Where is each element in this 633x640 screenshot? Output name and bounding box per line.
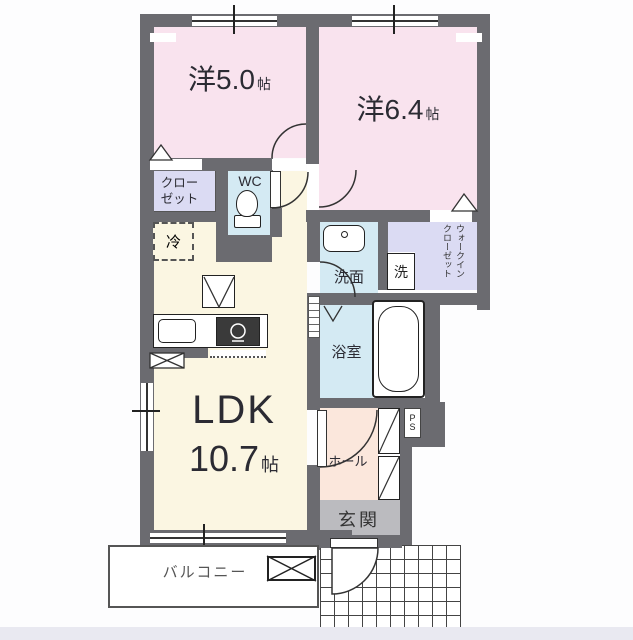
closet-label-line2: ゼット (161, 192, 199, 208)
refrigerator-box: 冷 (153, 222, 194, 261)
pillar-notch-right (456, 33, 482, 42)
wall-left (140, 14, 154, 545)
washroom-label: 洗面 (320, 260, 378, 292)
ldk-size-label: 10.7帖 (158, 438, 310, 484)
wic-label: ウォークイン クローゼット (438, 224, 466, 288)
room1-size: 5.0 (216, 64, 255, 96)
bath-hatch-panel (308, 296, 320, 338)
room2-door-opening (307, 164, 319, 210)
balcony-sliding-door (150, 533, 286, 543)
bathroom-label: 浴室 (320, 338, 373, 364)
window-ldk-left-tick (132, 410, 160, 412)
hall-label: ホール (318, 450, 378, 470)
wall-below-closet (143, 212, 216, 222)
room1-door-opening (272, 159, 306, 170)
pipe-space-box: PS (404, 408, 421, 438)
pipe-space-label: PS (408, 414, 417, 433)
wall-below-wc (228, 235, 272, 262)
wall-between-rooms (306, 14, 319, 164)
bathroom-label-text: 浴室 (331, 341, 361, 362)
wall-wic-left (378, 218, 388, 255)
ldk-name-label: LDK (158, 388, 310, 436)
wc-label: WC (228, 171, 272, 191)
stove-icon (216, 317, 260, 346)
room2-size: 6.4 (385, 94, 424, 126)
floorplan: 冷 洗 PS (0, 0, 633, 640)
shoe-cabinet-lower (378, 456, 400, 500)
balcony-label-text: バルコニー (163, 561, 248, 582)
kitchen-step (153, 348, 208, 358)
room1-prefix: 洋 (188, 58, 216, 98)
wall-room2-bottom-left (306, 210, 430, 222)
wall-hall-right (400, 445, 412, 545)
wall-wc-right (270, 208, 282, 237)
wall-washer-left (378, 252, 387, 290)
washroom-label-text: 洗面 (334, 266, 364, 287)
entrance-label: 玄関 (318, 504, 400, 534)
wall-room2-bottom-right (472, 210, 490, 222)
footer-strip (0, 627, 633, 640)
room2-prefix: 洋 (357, 88, 385, 128)
room2-unit: 帖 (425, 104, 439, 124)
bathtub-inner-icon (378, 306, 419, 392)
porch-tiles (320, 545, 461, 630)
wall-bath-right (425, 293, 440, 408)
wic-label-col1: ウォークイン (453, 224, 466, 288)
window-room2-tick (393, 5, 395, 34)
balcony-label: バルコニー (140, 560, 270, 582)
hall-label-text: ホール (328, 451, 367, 470)
room1-label: 洋5.0帖 (153, 58, 306, 102)
closet-label-line1: クロー (161, 176, 199, 192)
wall-ldk-right-1 (307, 210, 320, 262)
cupboard-icon (202, 275, 235, 308)
window-room1-tick (233, 5, 235, 34)
wic-door-opening (430, 210, 472, 222)
closet-label: クロー ゼット (143, 174, 216, 210)
room1-unit: 帖 (257, 74, 271, 94)
refrigerator-label: 冷 (166, 231, 181, 252)
ldk-name: LDK (192, 388, 276, 433)
wic-label-col2: クローゼット (440, 224, 453, 288)
entrance-label-text: 玄関 (338, 506, 380, 532)
washer-box: 洗 (387, 253, 415, 290)
wc-label-text: WC (238, 173, 261, 189)
wall-closet-wc-divider (216, 158, 228, 262)
pillar-notch-left (150, 33, 176, 42)
washer-label: 洗 (394, 262, 408, 282)
window-room2 (352, 16, 438, 26)
washbasin-icon (323, 225, 365, 252)
kitchen-dotted-edge (210, 350, 266, 358)
kitchen-sink-icon (158, 319, 196, 343)
shoe-cabinet-upper (378, 408, 400, 454)
window-ldk-left (141, 383, 153, 451)
washer-pan-crossbox (267, 556, 316, 581)
entrance-door-leaf (330, 538, 378, 548)
ldk-size: 10.7 (189, 438, 259, 480)
room2-label: 洋6.4帖 (319, 88, 477, 132)
ldk-unit: 帖 (261, 451, 279, 477)
toilet-bowl-icon (236, 190, 258, 217)
closet-opening (150, 159, 202, 170)
washbasin-faucet-icon (341, 231, 348, 238)
wall-right (477, 14, 490, 310)
